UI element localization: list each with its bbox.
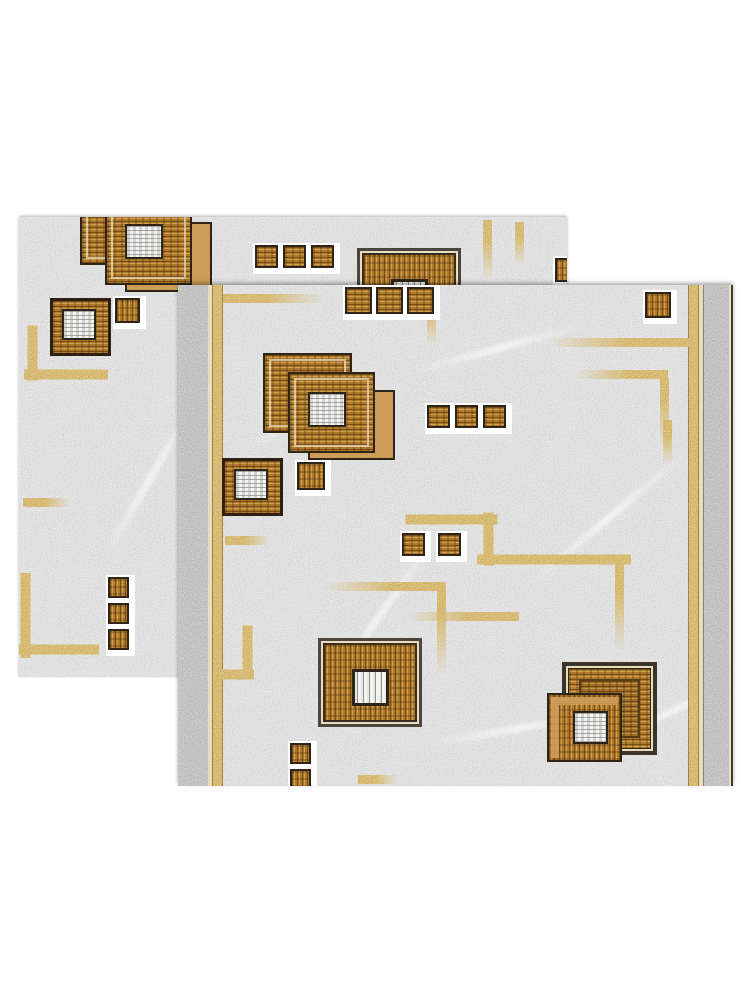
square-halo	[453, 403, 484, 434]
overlapping-squares-motif	[547, 662, 659, 764]
white-center	[573, 711, 608, 744]
speckle-texture	[225, 536, 270, 545]
square-halo	[106, 575, 135, 604]
speckle-texture	[21, 577, 30, 654]
square-halo	[106, 601, 135, 630]
wood-square	[345, 287, 372, 314]
speckle-texture	[21, 645, 95, 654]
gold-accent-line	[23, 498, 70, 507]
gold-accent-line	[483, 220, 492, 280]
wood-square	[455, 405, 478, 428]
wood-square	[376, 287, 403, 314]
square-halo	[309, 243, 340, 274]
gold-accent-line	[407, 612, 519, 621]
speckle-texture	[358, 775, 398, 784]
speckle-texture	[243, 628, 252, 672]
square-halo	[343, 285, 378, 320]
wood-square	[407, 287, 434, 314]
wood-square	[108, 603, 129, 624]
gold-accent-line	[484, 555, 624, 564]
square-halo	[288, 767, 317, 786]
marble-vein	[529, 452, 687, 586]
stacked-squares-motif	[263, 345, 395, 460]
white-center	[234, 469, 268, 500]
wood-square	[555, 258, 567, 282]
gold-accent-line	[548, 338, 689, 347]
tan-band-top	[551, 697, 618, 705]
square-halo	[106, 627, 135, 656]
square-halo	[643, 290, 677, 324]
white-center	[62, 309, 96, 340]
stacked-squares-motif	[80, 217, 212, 292]
wood-square	[311, 245, 334, 268]
square-halo	[288, 741, 317, 770]
wood-square	[438, 533, 461, 556]
speckle-texture	[213, 285, 222, 786]
speckle-texture	[615, 563, 624, 651]
wood-square	[290, 743, 311, 764]
speckle-texture	[410, 515, 493, 524]
speckle-texture	[483, 220, 492, 280]
white-center	[308, 392, 346, 427]
marble-vein	[410, 322, 586, 375]
white-center-square	[222, 458, 283, 516]
speckle-texture	[548, 338, 689, 347]
border-gold-stripe	[212, 285, 223, 786]
white-center	[352, 669, 389, 706]
speckle-texture	[689, 285, 698, 786]
gold-accent-line	[437, 582, 446, 676]
speckle-texture	[325, 582, 446, 591]
speckle-texture	[23, 498, 70, 507]
square-halo	[481, 403, 512, 434]
framed-square-motif	[318, 638, 422, 727]
gold-accent-line	[515, 222, 524, 265]
wood-square	[290, 769, 311, 786]
square-halo	[253, 243, 284, 274]
white-center	[125, 224, 163, 259]
square-halo	[425, 403, 456, 434]
gold-accent-line	[21, 645, 95, 654]
gold-accent-line	[28, 370, 104, 379]
product-photo-carpet	[0, 0, 750, 1000]
speckle-texture	[223, 294, 323, 303]
speckle-texture	[484, 555, 624, 564]
square-halo	[436, 531, 467, 562]
square-halo	[374, 285, 409, 320]
gold-accent-line	[410, 515, 493, 524]
wood-square	[297, 462, 325, 490]
wood-square	[108, 577, 129, 598]
gold-accent-line	[225, 536, 270, 545]
gold-accent-line	[615, 563, 624, 651]
gold-accent-line	[223, 294, 323, 303]
speckle-texture	[178, 285, 208, 786]
wood-square	[645, 292, 671, 318]
speckle-texture	[28, 370, 104, 379]
wood-square	[115, 298, 140, 323]
wood-square	[255, 245, 278, 268]
gold-accent-line	[576, 370, 668, 379]
gold-accent-line	[21, 577, 30, 654]
square-halo	[281, 243, 312, 274]
gold-accent-line	[216, 670, 252, 679]
square-halo	[405, 285, 440, 320]
speckle-texture	[663, 420, 672, 465]
wood-square	[402, 533, 425, 556]
wood-square	[108, 629, 129, 650]
tan-band-left	[551, 697, 559, 758]
wood-square	[283, 245, 306, 268]
square-halo	[400, 531, 431, 562]
speckle-texture	[515, 222, 524, 265]
gold-accent-line	[663, 420, 672, 465]
border-band	[178, 285, 208, 786]
wood-square	[427, 405, 450, 428]
gold-accent-line	[325, 582, 446, 591]
gold-accent-line	[358, 775, 398, 784]
overlap-front-square	[547, 693, 622, 762]
speckle-texture	[576, 370, 668, 379]
border-gold-stripe	[688, 285, 699, 786]
white-center-square	[50, 298, 111, 356]
speckle-texture	[705, 285, 729, 786]
gold-accent-line	[243, 628, 252, 672]
square-halo	[295, 460, 331, 496]
speckle-texture	[216, 670, 252, 679]
border-band	[705, 285, 729, 786]
speckle-texture	[407, 612, 519, 621]
border-dark-line	[731, 285, 733, 786]
speckle-texture	[437, 582, 446, 676]
wood-square	[483, 405, 506, 428]
square-halo	[553, 256, 567, 288]
square-halo	[113, 296, 146, 329]
rug-front	[178, 285, 733, 786]
